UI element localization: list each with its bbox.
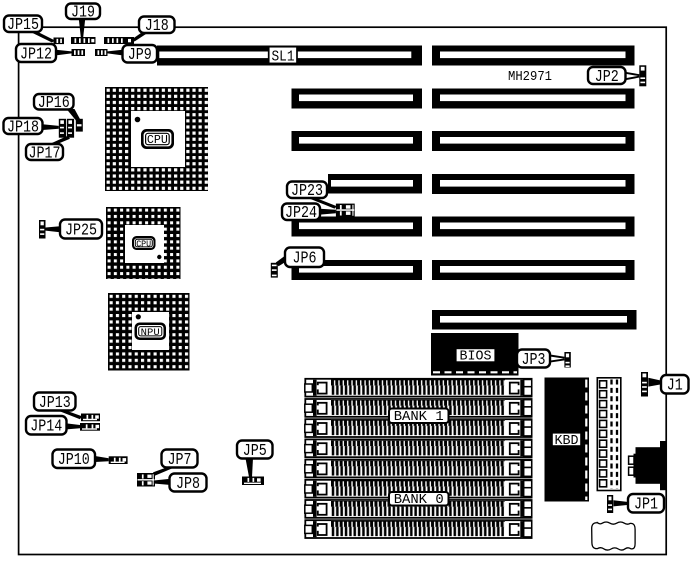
svg-text:JP18: JP18	[7, 118, 39, 137]
svg-text:JP23: JP23	[291, 182, 323, 201]
svg-text:NPU: NPU	[141, 327, 160, 339]
svg-text:CPU: CPU	[147, 134, 168, 147]
svg-text:JP16: JP16	[38, 94, 70, 113]
svg-text:KBD: KBD	[555, 434, 579, 449]
svg-text:JP15: JP15	[7, 16, 39, 35]
svg-text:SL1: SL1	[272, 48, 295, 65]
svg-text:J1: J1	[667, 377, 683, 396]
svg-text:JP2: JP2	[595, 68, 619, 87]
svg-text:JP25: JP25	[65, 221, 97, 240]
svg-text:JP8: JP8	[176, 475, 200, 494]
svg-text:JP10: JP10	[58, 451, 90, 470]
svg-text:JP24: JP24	[285, 204, 317, 223]
svg-text:J19: J19	[71, 4, 95, 23]
svg-text:CPU: CPU	[136, 238, 151, 249]
svg-text:BANK 1: BANK 1	[394, 409, 444, 425]
svg-text:JP14: JP14	[30, 418, 62, 437]
svg-text:JP5: JP5	[243, 442, 267, 461]
svg-text:JP6: JP6	[293, 250, 317, 269]
svg-text:JP12: JP12	[20, 45, 52, 64]
svg-text:BANK 0: BANK 0	[394, 492, 444, 508]
svg-text:BIOS: BIOS	[460, 350, 492, 365]
svg-text:JP3: JP3	[522, 351, 546, 370]
svg-text:JP7: JP7	[168, 451, 192, 470]
svg-text:JP9: JP9	[128, 46, 152, 65]
svg-text:JP1: JP1	[634, 496, 658, 515]
svg-text:J18: J18	[145, 17, 169, 36]
svg-text:JP13: JP13	[39, 394, 71, 413]
svg-text:JP17: JP17	[29, 144, 61, 163]
svg-text:MH2971: MH2971	[508, 70, 552, 85]
